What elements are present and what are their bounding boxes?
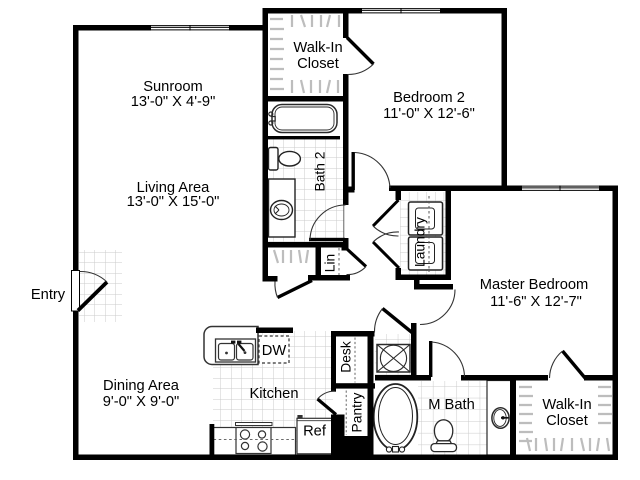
svg-text:Walk-In: Walk-In	[542, 397, 591, 413]
svg-text:Bath 2: Bath 2	[313, 152, 328, 192]
svg-text:DW: DW	[262, 343, 287, 359]
svg-text:11'-6" X 12'-7": 11'-6" X 12'-7"	[490, 294, 582, 310]
svg-text:Walk-In: Walk-In	[293, 40, 342, 56]
svg-text:Desk: Desk	[339, 341, 354, 373]
svg-text:Sunroom: Sunroom	[143, 79, 203, 95]
svg-text:Bedroom 2: Bedroom 2	[393, 90, 465, 106]
svg-text:Pantry: Pantry	[350, 392, 365, 432]
svg-text:Dining Area: Dining Area	[103, 378, 180, 394]
svg-text:M Bath: M Bath	[428, 397, 475, 413]
svg-text:Ref: Ref	[303, 424, 327, 440]
svg-text:Kitchen: Kitchen	[250, 386, 299, 402]
svg-text:Closet: Closet	[297, 56, 339, 72]
svg-text:13'-0" X 4'-9": 13'-0" X 4'-9"	[131, 94, 216, 110]
svg-text:Lin: Lin	[323, 254, 338, 272]
svg-text:13'-0" X 15'-0": 13'-0" X 15'-0"	[127, 194, 220, 210]
svg-text:Closet: Closet	[546, 413, 588, 429]
svg-text:11'-0" X 12'-6": 11'-0" X 12'-6"	[383, 106, 475, 122]
svg-text:Entry: Entry	[31, 287, 66, 303]
svg-text:Master Bedroom: Master Bedroom	[480, 277, 589, 293]
svg-text:9'-0" X 9'-0": 9'-0" X 9'-0"	[103, 394, 179, 410]
svg-text:Laundry: Laundry	[413, 217, 428, 267]
